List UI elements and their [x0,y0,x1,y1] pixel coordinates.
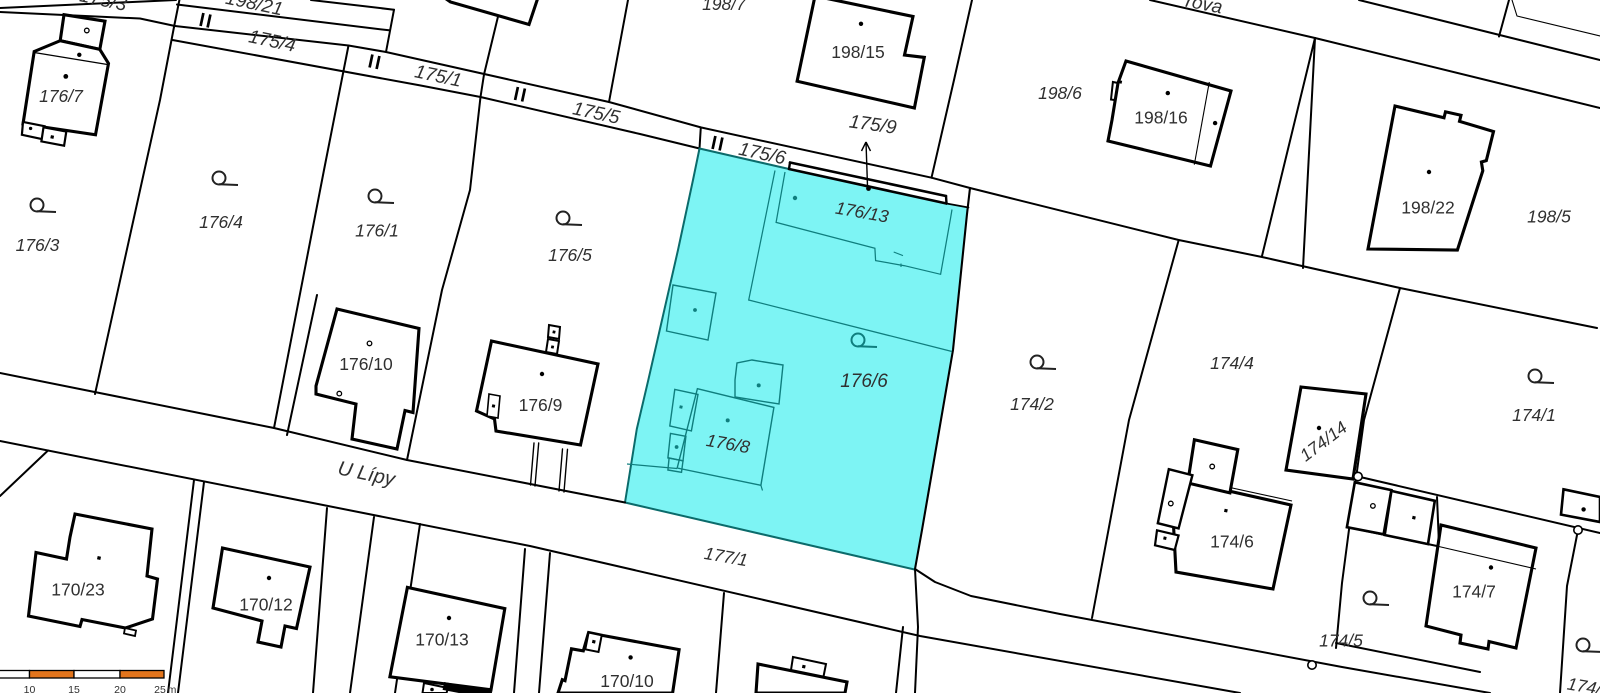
svg-text:176/9: 176/9 [519,395,563,415]
svg-text:174/1: 174/1 [1512,405,1556,425]
svg-text:m: m [168,684,177,693]
svg-text:176/4: 176/4 [199,212,243,232]
svg-text:176/5: 176/5 [548,245,592,265]
svg-text:10: 10 [24,684,36,693]
svg-text:174/6: 174/6 [1210,532,1254,552]
svg-text:170/23: 170/23 [51,580,105,600]
svg-text:198/22: 198/22 [1401,198,1455,218]
svg-text:198/5: 198/5 [1527,207,1571,227]
svg-text:174/4: 174/4 [1210,353,1254,373]
svg-text:176/1: 176/1 [355,221,399,241]
svg-text:198/6: 198/6 [1038,83,1082,103]
svg-text:174/2: 174/2 [1010,394,1054,414]
svg-text:176/10: 176/10 [339,354,393,374]
svg-text:176/7: 176/7 [39,86,84,106]
svg-text:20: 20 [114,684,126,693]
svg-text:25: 25 [154,684,166,693]
svg-text:198/16: 198/16 [1134,108,1188,128]
svg-text:198/7: 198/7 [702,0,747,14]
svg-text:15: 15 [68,684,80,693]
svg-text:170/12: 170/12 [239,595,293,615]
svg-text:170/13: 170/13 [415,630,469,650]
svg-text:176/6: 176/6 [840,371,888,392]
svg-text:170/10: 170/10 [600,671,654,691]
svg-text:198/15: 198/15 [831,42,885,62]
svg-text:176/3: 176/3 [16,235,60,255]
svg-text:174/5: 174/5 [1319,631,1363,651]
svg-text:174/7: 174/7 [1452,582,1496,602]
